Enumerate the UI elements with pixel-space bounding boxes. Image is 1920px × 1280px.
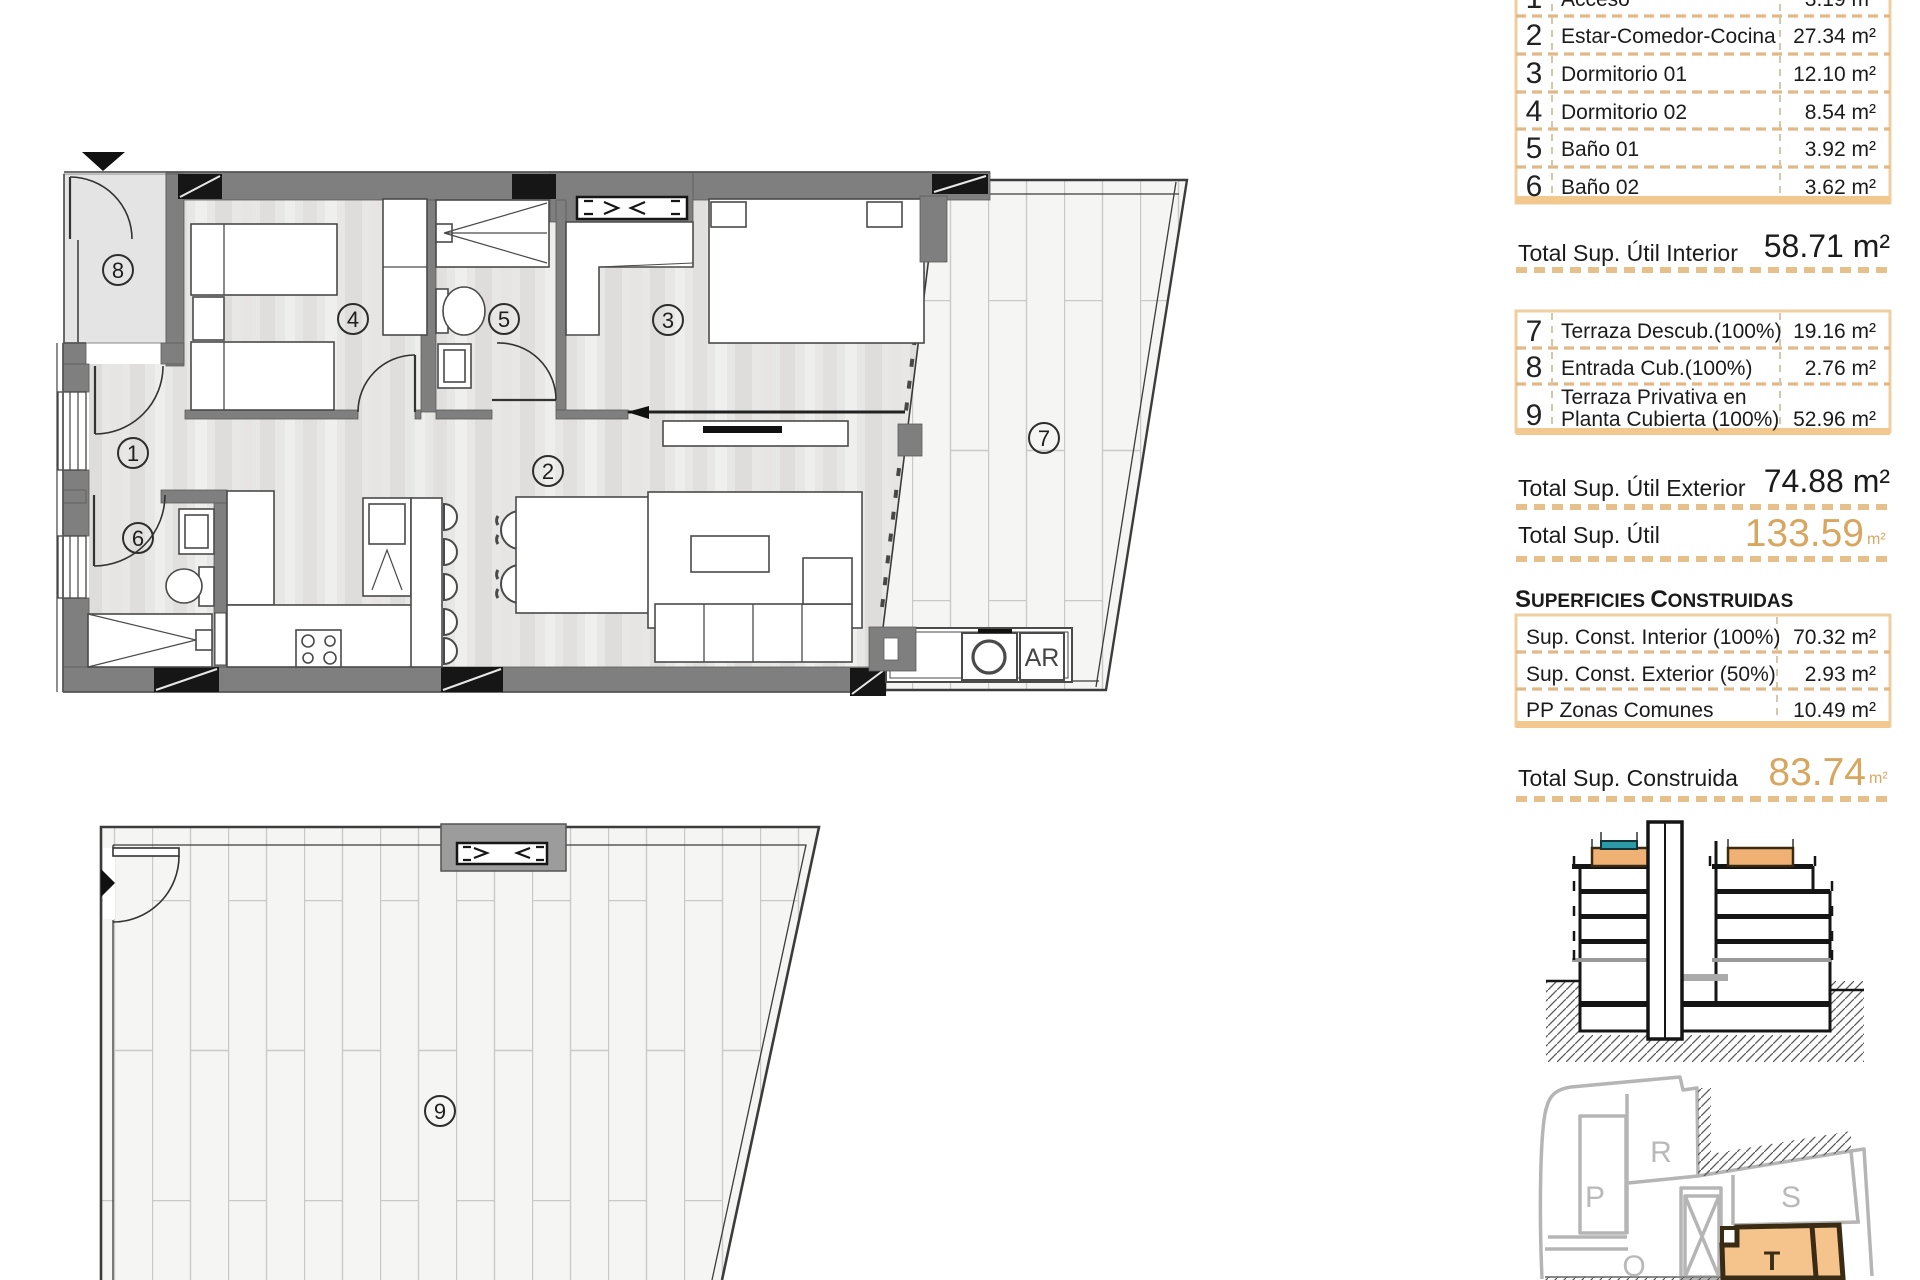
svg-text:83.74: 83.74 [1768, 751, 1866, 794]
svg-text:3: 3 [1526, 57, 1543, 90]
svg-text:SUPERFICIES CONSTRUIDAS: SUPERFICIES CONSTRUIDAS [1515, 586, 1793, 613]
svg-text:52.96 m²: 52.96 m² [1793, 408, 1876, 431]
svg-text:1: 1 [1526, 0, 1543, 15]
svg-text:Planta Cubierta (100%): Planta Cubierta (100%) [1561, 408, 1779, 431]
svg-text:Total Sup. Construida: Total Sup. Construida [1518, 765, 1738, 791]
svg-text:Total Sup. Útil Interior: Total Sup. Útil Interior [1518, 240, 1738, 266]
svg-text:8.54 m²: 8.54 m² [1805, 101, 1876, 124]
svg-text:2.93 m²: 2.93 m² [1805, 663, 1876, 686]
svg-text:3.92 m²: 3.92 m² [1805, 138, 1876, 161]
svg-text:Dormitorio 02: Dormitorio 02 [1561, 101, 1687, 124]
svg-text:R: R [1650, 1136, 1672, 1169]
svg-text:9: 9 [434, 1099, 446, 1124]
svg-text:4: 4 [347, 307, 359, 332]
svg-text:3: 3 [662, 308, 674, 333]
svg-text:2: 2 [1526, 19, 1543, 52]
svg-text:Dormitorio 01: Dormitorio 01 [1561, 63, 1687, 86]
svg-text:Entrada Cub.(100%): Entrada Cub.(100%) [1561, 357, 1752, 380]
svg-text:Terraza Descub.(100%): Terraza Descub.(100%) [1561, 320, 1782, 343]
svg-text:7: 7 [1526, 315, 1543, 348]
svg-text:5: 5 [1526, 132, 1543, 165]
svg-text:7: 7 [1038, 426, 1050, 451]
svg-text:AR: AR [1025, 644, 1060, 672]
svg-text:Estar-Comedor-Cocina: Estar-Comedor-Cocina [1561, 25, 1776, 48]
svg-text:1: 1 [127, 441, 139, 466]
svg-text:4: 4 [1526, 95, 1543, 128]
svg-text:m²: m² [1867, 531, 1886, 548]
svg-text:58.71 m²: 58.71 m² [1764, 228, 1891, 264]
svg-text:Terraza Privativa en: Terraza Privativa en [1561, 386, 1747, 409]
svg-text:12.10 m²: 12.10 m² [1793, 63, 1876, 86]
svg-text:133.59: 133.59 [1745, 512, 1864, 555]
svg-text:10.49 m²: 10.49 m² [1793, 699, 1876, 722]
svg-text:6: 6 [132, 526, 144, 551]
svg-text:74.88 m²: 74.88 m² [1764, 463, 1891, 499]
svg-text:Total Sup. Útil Exterior: Total Sup. Útil Exterior [1518, 475, 1746, 501]
svg-text:Baño 02: Baño 02 [1561, 176, 1639, 199]
svg-text:Total Sup. Útil: Total Sup. Útil [1518, 522, 1660, 548]
svg-text:8: 8 [112, 258, 124, 283]
svg-text:Baño 01: Baño 01 [1561, 138, 1639, 161]
svg-text:2: 2 [542, 459, 554, 484]
svg-text:S: S [1781, 1181, 1801, 1214]
svg-text:3.19 m²: 3.19 m² [1805, 0, 1876, 11]
svg-text:Acceso: Acceso [1561, 0, 1630, 11]
svg-text:2.76 m²: 2.76 m² [1805, 357, 1876, 380]
svg-text:8: 8 [1526, 351, 1543, 384]
svg-text:70.32 m²: 70.32 m² [1793, 626, 1876, 649]
svg-text:19.16 m²: 19.16 m² [1793, 320, 1876, 343]
svg-text:9: 9 [1526, 399, 1543, 432]
svg-text:Sup. Const. Exterior (50%): Sup. Const. Exterior (50%) [1526, 663, 1776, 686]
svg-text:Sup. Const. Interior (100%): Sup. Const. Interior (100%) [1526, 626, 1780, 649]
svg-text:PP Zonas Comunes: PP Zonas Comunes [1526, 699, 1714, 722]
svg-text:P: P [1585, 1181, 1605, 1214]
svg-text:27.34 m²: 27.34 m² [1793, 25, 1876, 48]
svg-text:3.62 m²: 3.62 m² [1805, 176, 1876, 199]
svg-text:6: 6 [1526, 170, 1543, 203]
svg-text:5: 5 [498, 307, 510, 332]
svg-text:O: O [1622, 1250, 1645, 1280]
svg-text:T: T [1764, 1246, 1781, 1276]
svg-text:m²: m² [1869, 770, 1888, 787]
